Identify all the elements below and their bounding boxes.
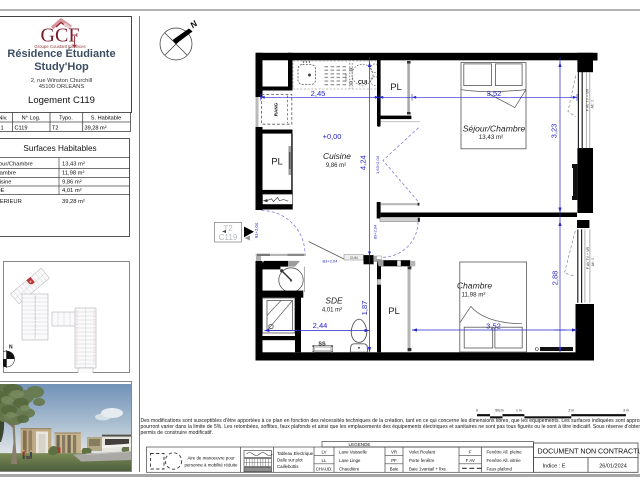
svg-text:Tableau Electrique: Tableau Electrique [277,451,314,456]
svg-text:Aire de manoeuvre pour: Aire de manoeuvre pour [187,456,235,461]
svg-text:0: 0 [476,409,478,413]
svg-text:Indice : E: Indice : E [543,464,566,470]
svg-text:11,98 m²: 11,98 m² [462,292,486,299]
svg-text:CUI: CUI [358,80,368,86]
svg-text:3,23: 3,23 [550,124,559,139]
svg-text:4,01 m²: 4,01 m² [322,308,342,314]
svg-text:PF: PF [391,458,397,463]
svg-text:Alt : 0: Alt : 0 [591,258,595,267]
svg-text:13,43 m²: 13,43 m² [479,134,503,141]
svg-text:Volet Roulant: Volet Roulant [409,450,436,455]
svg-text:50cm: 50cm [495,409,503,413]
svg-text:LL: LL [322,458,327,463]
svg-text:Faux plafond: Faux plafond [487,466,513,471]
svg-text:+0,00: +0,00 [323,132,342,141]
svg-text:3 m: 3 m [623,409,629,413]
svg-text:PL: PL [271,157,283,168]
svg-text:B3+2,04: B3+2,04 [322,259,338,264]
svg-text:2,44: 2,44 [313,321,328,330]
svg-text:LV: LV [321,450,326,455]
svg-text:Caillebottis: Caillebottis [277,464,299,469]
svg-text:Porte fenêtre: Porte fenêtre [409,458,435,463]
svg-text:3,52: 3,52 [487,89,502,98]
svg-text:Fenêtre All. vitrée: Fenêtre All. vitrée [487,458,522,463]
svg-text:2,45: 2,45 [311,89,326,98]
svg-text:Fenêtre All. pleine: Fenêtre All. pleine [487,450,523,455]
svg-text:F AV: F AV [466,458,475,463]
svg-text:PL: PL [388,306,400,317]
svg-text:2 m: 2 m [568,409,574,413]
svg-text:Lave Linge: Lave Linge [339,458,361,463]
svg-text:26/01/2024: 26/01/2024 [599,464,627,470]
svg-text:F: F [469,450,472,455]
svg-text:4,24: 4,24 [358,155,367,170]
svg-text:DOCUMENT NON CONTRACTUEL: DOCUMENT NON CONTRACTUEL [538,447,640,455]
svg-text:Alt : 0: Alt : 0 [591,100,595,109]
svg-text:Cuisine: Cuisine [323,151,351,161]
svg-text:Chaudière: Chaudière [339,466,360,471]
svg-text:personne à mobilité réduite: personne à mobilité réduite [185,463,239,468]
svg-text:SDE: SDE [325,296,343,306]
svg-text:N: N [188,18,200,30]
svg-text:2,88: 2,88 [551,271,560,286]
svg-text:9,86 m²: 9,86 m² [326,163,346,169]
svg-text:C119: C119 [219,233,238,242]
svg-text:CUM: CUM [350,256,358,260]
svg-text:F AV TV + VR: F AV TV + VR [586,247,590,270]
svg-text:F AV TV + VR: F AV TV + VR [586,89,590,112]
svg-text:1,63+2,04: 1,63+2,04 [375,155,380,174]
svg-text:1,87: 1,87 [360,301,369,316]
svg-text:VR: VR [391,450,397,455]
svg-text:Chambre: Chambre [457,281,493,291]
svg-text:Séjour/Chambre: Séjour/Chambre [463,124,526,134]
svg-text:Dalle sur plot: Dalle sur plot [277,458,303,463]
svg-text:91+2,04: 91+2,04 [254,222,259,238]
svg-text:PL: PL [390,82,402,93]
svg-text:1 m: 1 m [516,409,522,413]
svg-text:60x60: 60x60 [344,73,348,82]
svg-text:83+2,04: 83+2,04 [373,224,378,239]
svg-text:Baie 1vantail + fixe: Baie 1vantail + fixe [409,466,447,471]
svg-text:RANG: RANG [274,102,279,116]
svg-text:LEGENDE: LEGENDE [349,442,371,447]
svg-text:Lave Vaisselle: Lave Vaisselle [339,450,368,455]
svg-text:Baie: Baie [390,466,399,471]
svg-text:3,52: 3,52 [486,322,501,331]
svg-text:CHAUD.: CHAUD. [316,466,333,471]
